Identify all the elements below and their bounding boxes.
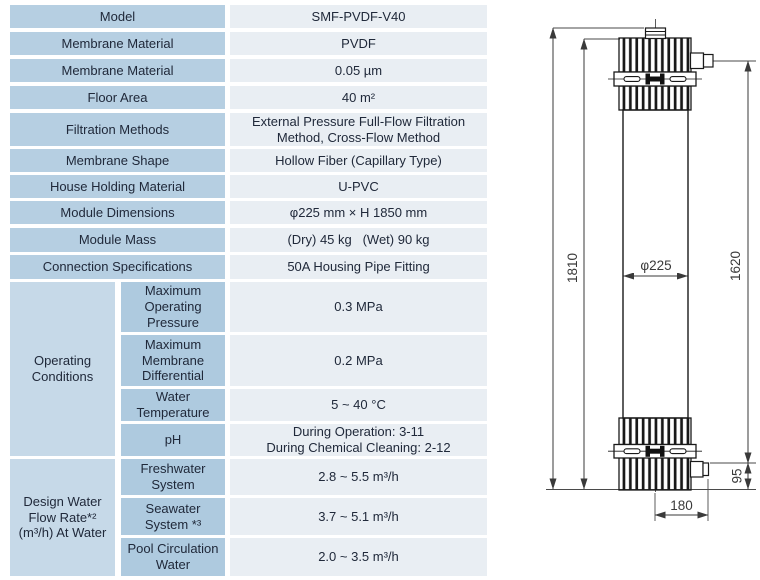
table-subrow: Freshwater System 2.8 ~ 5.5 m³/h: [121, 459, 487, 495]
group-label: Design Water Flow Rate*² (m³/h) At Water: [10, 459, 115, 576]
bottom-side-port: [691, 462, 709, 478]
table-subrow: Maximum Membrane Differential 0.2 MPa: [121, 335, 487, 386]
row-label: Model: [10, 5, 225, 28]
top-side-port: [691, 53, 714, 69]
subrow-value: 2.0 ~ 3.5 m³/h: [230, 538, 487, 576]
module-technical-drawing: 1810 1620 φ225 95 180: [510, 0, 760, 580]
spec-table: Model SMF-PVDF-V40 Membrane Material PVD…: [10, 5, 487, 576]
row-label: Module Mass: [10, 228, 225, 252]
bottom-end-cap: [608, 418, 702, 490]
subrow-value: 0.2 MPa: [230, 335, 487, 386]
row-label: Membrane Material: [10, 32, 225, 55]
dim-label-95: 95: [730, 468, 745, 483]
row-label: Membrane Material: [10, 59, 225, 82]
row-label: Filtration Methods: [10, 113, 225, 146]
subrow-value: 2.8 ~ 5.5 m³/h: [230, 459, 487, 495]
row-value: 0.05 µm: [230, 59, 487, 82]
group-label: Operating Conditions: [10, 282, 115, 456]
row-value: Hollow Fiber (Capillary Type): [230, 149, 487, 172]
table-row: Module Dimensions φ225 mm × H 1850 mm: [10, 201, 487, 224]
table-row: Module Mass (Dry) 45 kg (Wet) 90 kg: [10, 228, 487, 252]
table-subrow: Seawater System *³ 3.7 ~ 5.1 m³/h: [121, 498, 487, 535]
row-value: (Dry) 45 kg (Wet) 90 kg: [230, 228, 487, 252]
table-row: Filtration Methods External Pressure Ful…: [10, 113, 487, 146]
group-design-water-flow-rate: Design Water Flow Rate*² (m³/h) At Water…: [10, 459, 487, 576]
row-value: External Pressure Full-Flow Filtration M…: [230, 113, 487, 146]
subrow-value: During Operation: 3-11 During Chemical C…: [230, 424, 487, 456]
row-label: Connection Specifications: [10, 255, 225, 279]
subrow-label: Maximum Membrane Differential: [121, 335, 225, 386]
table-row: Membrane Material PVDF: [10, 32, 487, 55]
row-value: PVDF: [230, 32, 487, 55]
table-row: Membrane Material 0.05 µm: [10, 59, 487, 82]
row-label: Membrane Shape: [10, 149, 225, 172]
row-label: House Holding Material: [10, 175, 225, 198]
subrow-label: Seawater System *³: [121, 498, 225, 535]
dim-label-1620: 1620: [728, 251, 743, 281]
subrow-label: Freshwater System: [121, 459, 225, 495]
row-value: SMF-PVDF-V40: [230, 5, 487, 28]
spec-sheet-page: Model SMF-PVDF-V40 Membrane Material PVD…: [0, 0, 760, 580]
row-label: Floor Area: [10, 86, 225, 109]
top-end-cap: [608, 38, 702, 110]
group-operating-conditions: Operating Conditions Maximum Operating P…: [10, 282, 487, 456]
subrow-label: pH: [121, 424, 225, 456]
row-label: Module Dimensions: [10, 201, 225, 224]
table-row: Connection Specifications 50A Housing Pi…: [10, 255, 487, 279]
dim-label-1810: 1810: [565, 253, 580, 283]
dim-label-180: 180: [670, 498, 693, 513]
table-row: Floor Area 40 m²: [10, 86, 487, 109]
dim-label-diameter: φ225: [640, 258, 671, 273]
subrow-label: Pool Circulation Water: [121, 538, 225, 576]
top-port: [646, 28, 666, 39]
table-subrow: Pool Circulation Water 2.0 ~ 3.5 m³/h: [121, 538, 487, 576]
table-subrow: Maximum Operating Pressure 0.3 MPa: [121, 282, 487, 332]
subrow-value: 0.3 MPa: [230, 282, 487, 332]
table-row: Membrane Shape Hollow Fiber (Capillary T…: [10, 149, 487, 172]
table-row: Model SMF-PVDF-V40: [10, 5, 487, 28]
group-rows: Maximum Operating Pressure 0.3 MPa Maxim…: [121, 282, 487, 456]
table-row: House Holding Material U-PVC: [10, 175, 487, 198]
group-rows: Freshwater System 2.8 ~ 5.5 m³/h Seawate…: [121, 459, 487, 576]
subrow-value: 5 ~ 40 °C: [230, 389, 487, 421]
row-value: U-PVC: [230, 175, 487, 198]
subrow-label: Water Temperature: [121, 389, 225, 421]
table-subrow: pH During Operation: 3-11 During Chemica…: [121, 424, 487, 456]
row-value: φ225 mm × H 1850 mm: [230, 201, 487, 224]
row-value: 50A Housing Pipe Fitting: [230, 255, 487, 279]
subrow-value: 3.7 ~ 5.1 m³/h: [230, 498, 487, 535]
table-subrow: Water Temperature 5 ~ 40 °C: [121, 389, 487, 421]
row-value: 40 m²: [230, 86, 487, 109]
subrow-label: Maximum Operating Pressure: [121, 282, 225, 332]
